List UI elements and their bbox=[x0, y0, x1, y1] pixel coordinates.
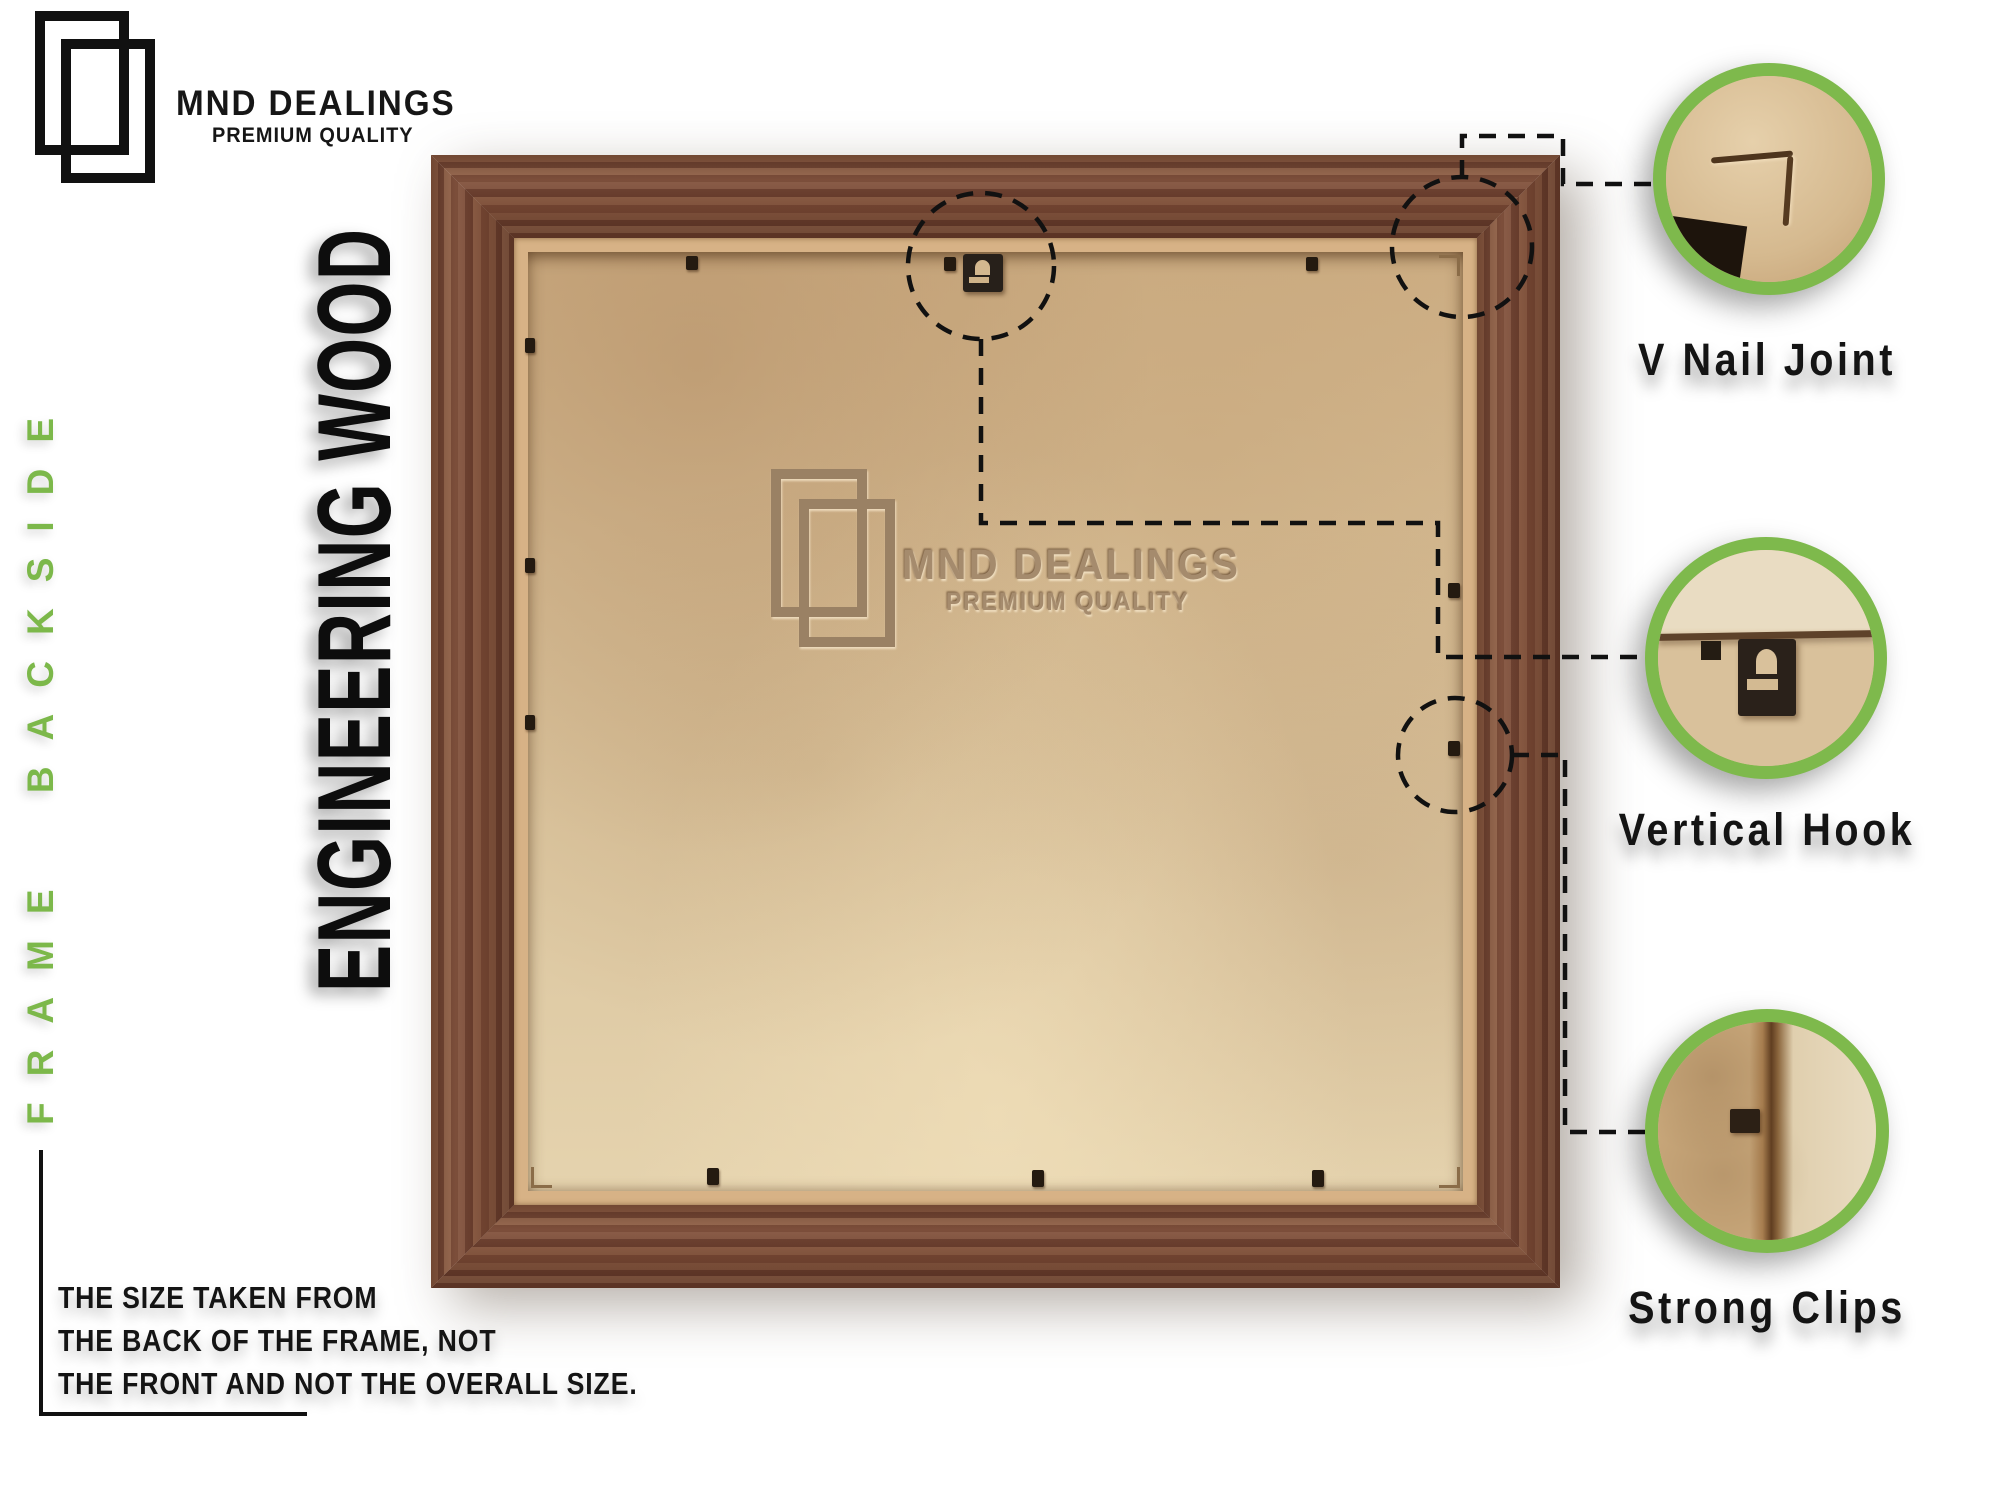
frame-clip bbox=[1306, 257, 1318, 271]
hanging-hook-hole bbox=[975, 260, 990, 275]
brand-tagline: PREMIUM QUALITY bbox=[212, 124, 414, 148]
v-nail-joint-detail bbox=[1666, 76, 1872, 282]
hanging-hook-slot bbox=[969, 277, 989, 283]
v-nail-groove bbox=[1711, 151, 1794, 164]
frame-clip bbox=[686, 256, 698, 270]
frame-clip bbox=[1032, 1170, 1044, 1187]
frame-wood-right bbox=[1477, 155, 1560, 1288]
note-rule-vertical bbox=[39, 1150, 43, 1416]
size-note-line-3: THE FRONT AND NOT THE OVERALL SIZE. bbox=[58, 1362, 638, 1405]
hook-detail-slot bbox=[1747, 679, 1777, 690]
callout-label-vertical-hook: Vertical Hook bbox=[1591, 804, 1943, 856]
strong-clips-detail bbox=[1658, 1022, 1876, 1240]
frame-clip bbox=[525, 715, 535, 730]
frame-backside-photo bbox=[431, 155, 1560, 1288]
product-title: ENGINEERING WOOD bbox=[296, 228, 415, 992]
frame-clip bbox=[944, 257, 956, 271]
callout-label-strong-clips: Strong Clips bbox=[1591, 1282, 1943, 1334]
callout-label-v-nail-joint: V Nail Joint bbox=[1591, 334, 1943, 386]
hook-detail bbox=[1738, 639, 1796, 717]
frame-backing-board bbox=[528, 252, 1463, 1191]
lip-corner-mark bbox=[531, 1167, 552, 1188]
lip-corner-mark bbox=[1439, 255, 1460, 276]
frame-clip bbox=[1448, 583, 1460, 598]
corner-shadow bbox=[1653, 215, 1746, 295]
watermark-brand: MND DEALINGS bbox=[902, 541, 1241, 590]
clip-detail bbox=[1730, 1109, 1761, 1133]
frame-wood-top bbox=[431, 155, 1560, 238]
frame-clip bbox=[525, 338, 535, 353]
frame-wood-bottom bbox=[431, 1205, 1560, 1288]
v-nail-joint-zoom-image bbox=[1653, 63, 1885, 295]
brand-frames-icon bbox=[34, 10, 166, 211]
hanging-hook bbox=[963, 254, 1003, 292]
watermark-frames-icon bbox=[770, 468, 906, 673]
side-label-frame-backside: FRAME BACKSIDE bbox=[20, 392, 62, 1125]
v-nail-groove bbox=[1783, 156, 1794, 226]
size-note: THE SIZE TAKEN FROM THE BACK OF THE FRAM… bbox=[58, 1276, 638, 1405]
frame-clip bbox=[1312, 1170, 1324, 1187]
frame-clip bbox=[525, 558, 535, 573]
hook-detail-hole bbox=[1756, 649, 1777, 674]
lip-corner-mark bbox=[1439, 1167, 1460, 1188]
vertical-hook-detail bbox=[1658, 550, 1874, 766]
watermark-tagline: PREMIUM QUALITY bbox=[946, 588, 1190, 617]
note-rule-horizontal bbox=[39, 1412, 307, 1416]
page: { "header": { "brand": "MND DEALINGS", "… bbox=[0, 0, 2000, 1500]
frame-clip bbox=[1448, 741, 1460, 756]
size-note-line-2: THE BACK OF THE FRAME, NOT bbox=[58, 1319, 638, 1362]
vertical-hook-zoom-image bbox=[1645, 537, 1887, 779]
strong-clips-zoom-image bbox=[1645, 1009, 1889, 1253]
frame-clip bbox=[707, 1168, 719, 1185]
frame-wood-left bbox=[431, 155, 514, 1288]
wood-texture bbox=[1658, 1022, 1876, 1240]
clip-detail bbox=[1701, 641, 1720, 660]
brand-name: MND DEALINGS bbox=[176, 84, 456, 124]
